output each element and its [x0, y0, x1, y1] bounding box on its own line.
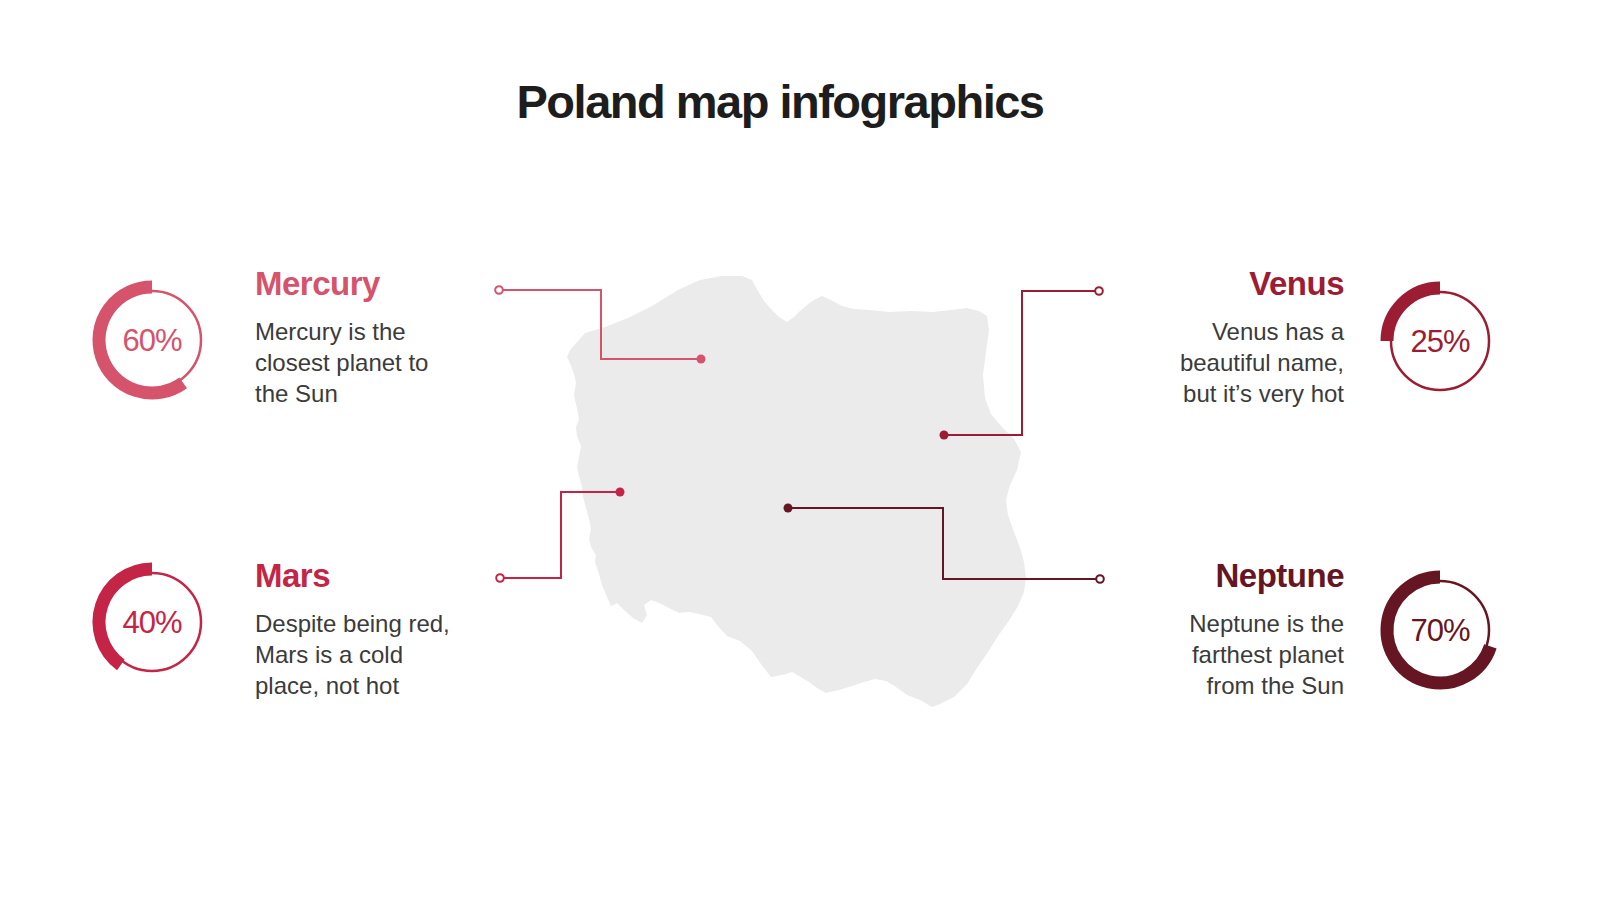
venus-donut-chart: 25% [1375, 276, 1505, 406]
mercury-donut-chart: 60% [87, 275, 217, 405]
map-and-connectors [0, 0, 1600, 900]
venus-description: Venus has a beautiful name, but it’s ver… [1064, 316, 1344, 409]
mars-map-point-dot [616, 488, 625, 497]
mars-title: Mars [255, 558, 535, 594]
poland-map-shape [567, 276, 1026, 707]
mercury-title: Mercury [255, 266, 535, 302]
mars-description: Despite being red, Mars is a cold place,… [255, 608, 535, 701]
venus-section: Venus Venus has a beautiful name, but it… [1064, 266, 1344, 409]
neptune-donut-chart: 70% [1375, 565, 1505, 695]
neptune-map-point-dot [784, 504, 793, 513]
slide-canvas: Poland map infographics 60% 25% 40% 70% … [0, 0, 1600, 900]
venus-map-point-dot [940, 431, 949, 440]
mercury-percent-label: 60% [122, 323, 181, 358]
neptune-section: Neptune Neptune is the farthest planet f… [1064, 558, 1344, 701]
venus-title: Venus [1064, 266, 1344, 302]
neptune-percent-label: 70% [1410, 613, 1469, 648]
mars-section: Mars Despite being red, Mars is a cold p… [255, 558, 535, 701]
mercury-section: Mercury Mercury is the closest planet to… [255, 266, 535, 409]
neptune-description: Neptune is the farthest planet from the … [1064, 608, 1344, 701]
neptune-title: Neptune [1064, 558, 1344, 594]
mercury-map-point-dot [697, 355, 706, 364]
mars-percent-label: 40% [122, 605, 181, 640]
mars-donut-chart: 40% [87, 557, 217, 687]
venus-percent-label: 25% [1410, 324, 1469, 359]
mercury-description: Mercury is the closest planet to the Sun [255, 316, 535, 409]
